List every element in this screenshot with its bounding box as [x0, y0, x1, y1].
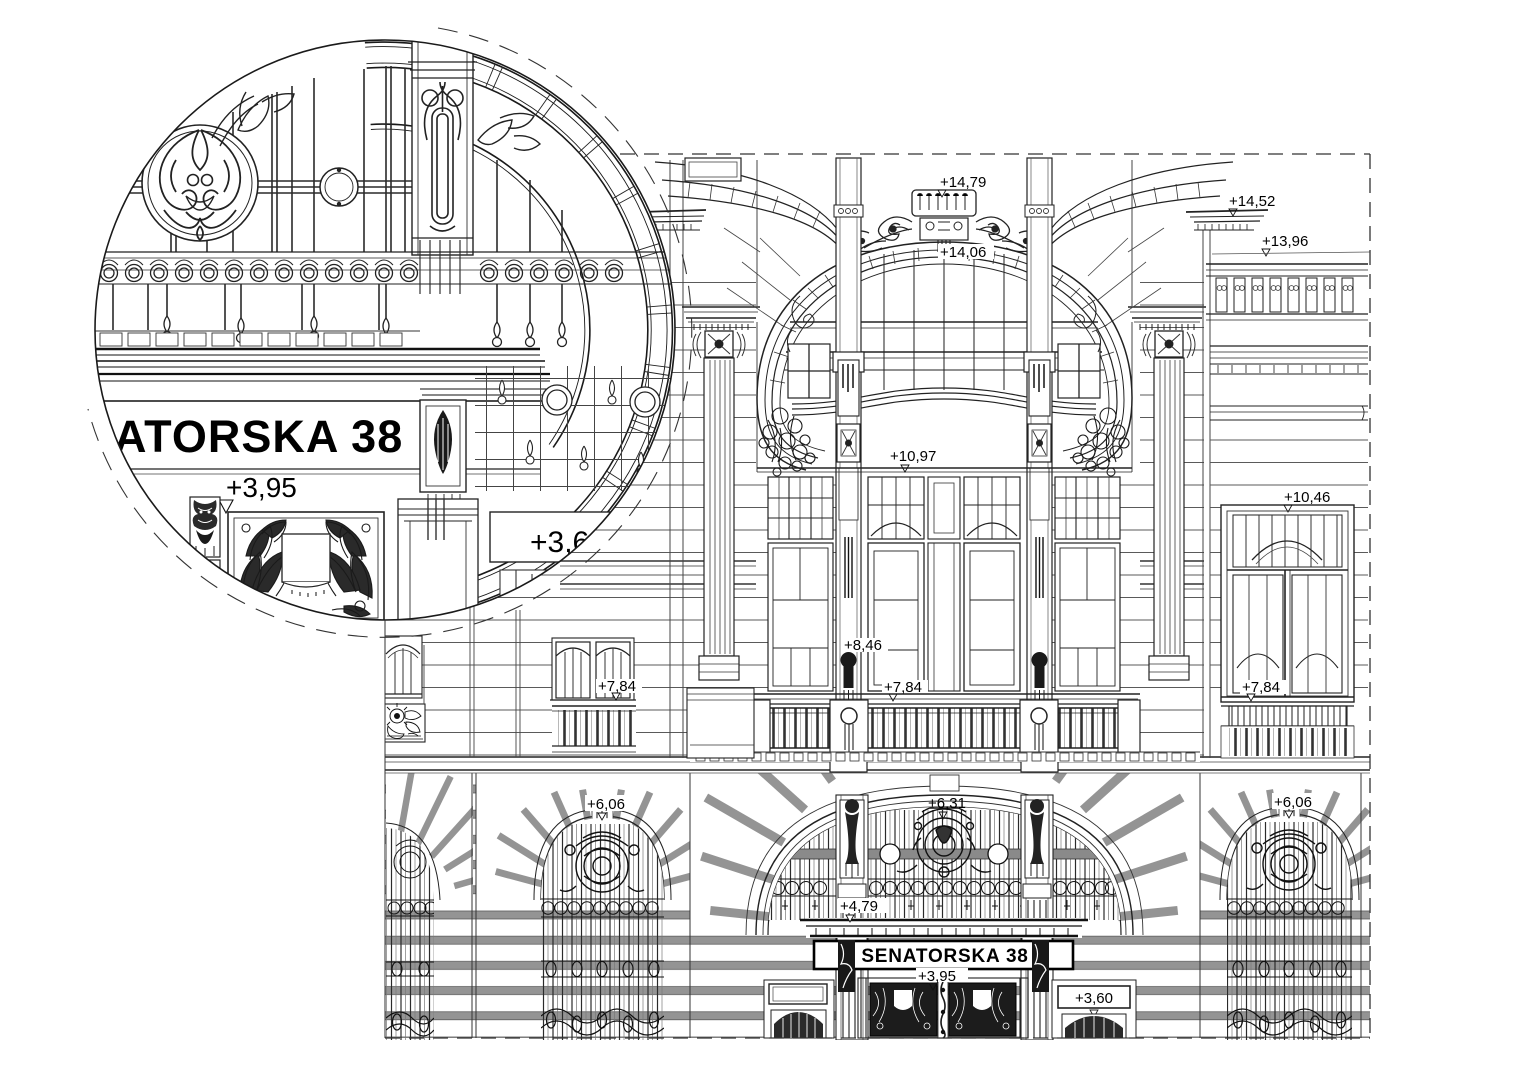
svg-text:+3,60: +3,60	[1075, 990, 1113, 1007]
svg-text:ATORSKA 38: ATORSKA 38	[114, 411, 403, 462]
svg-text:+13,96: +13,96	[1262, 233, 1308, 250]
svg-text:+8,46: +8,46	[844, 637, 882, 654]
svg-text:+6,06: +6,06	[587, 796, 625, 813]
svg-text:+10,46: +10,46	[1284, 489, 1330, 506]
svg-text:+7,84: +7,84	[598, 678, 636, 695]
svg-text:+14,06: +14,06	[940, 244, 986, 261]
svg-text:+6,06: +6,06	[1274, 794, 1312, 811]
svg-text:+3,95: +3,95	[918, 968, 956, 985]
svg-text:+4,79: +4,79	[840, 898, 878, 915]
svg-text:+10,97: +10,97	[890, 448, 936, 465]
svg-text:SENATORSKA 38: SENATORSKA 38	[861, 946, 1028, 967]
svg-text:+7,84: +7,84	[1242, 679, 1280, 696]
svg-text:+14,79: +14,79	[940, 174, 986, 191]
svg-text:+6,31: +6,31	[928, 795, 966, 812]
svg-text:+14,52: +14,52	[1229, 193, 1275, 210]
svg-text:+3,95: +3,95	[226, 472, 297, 503]
